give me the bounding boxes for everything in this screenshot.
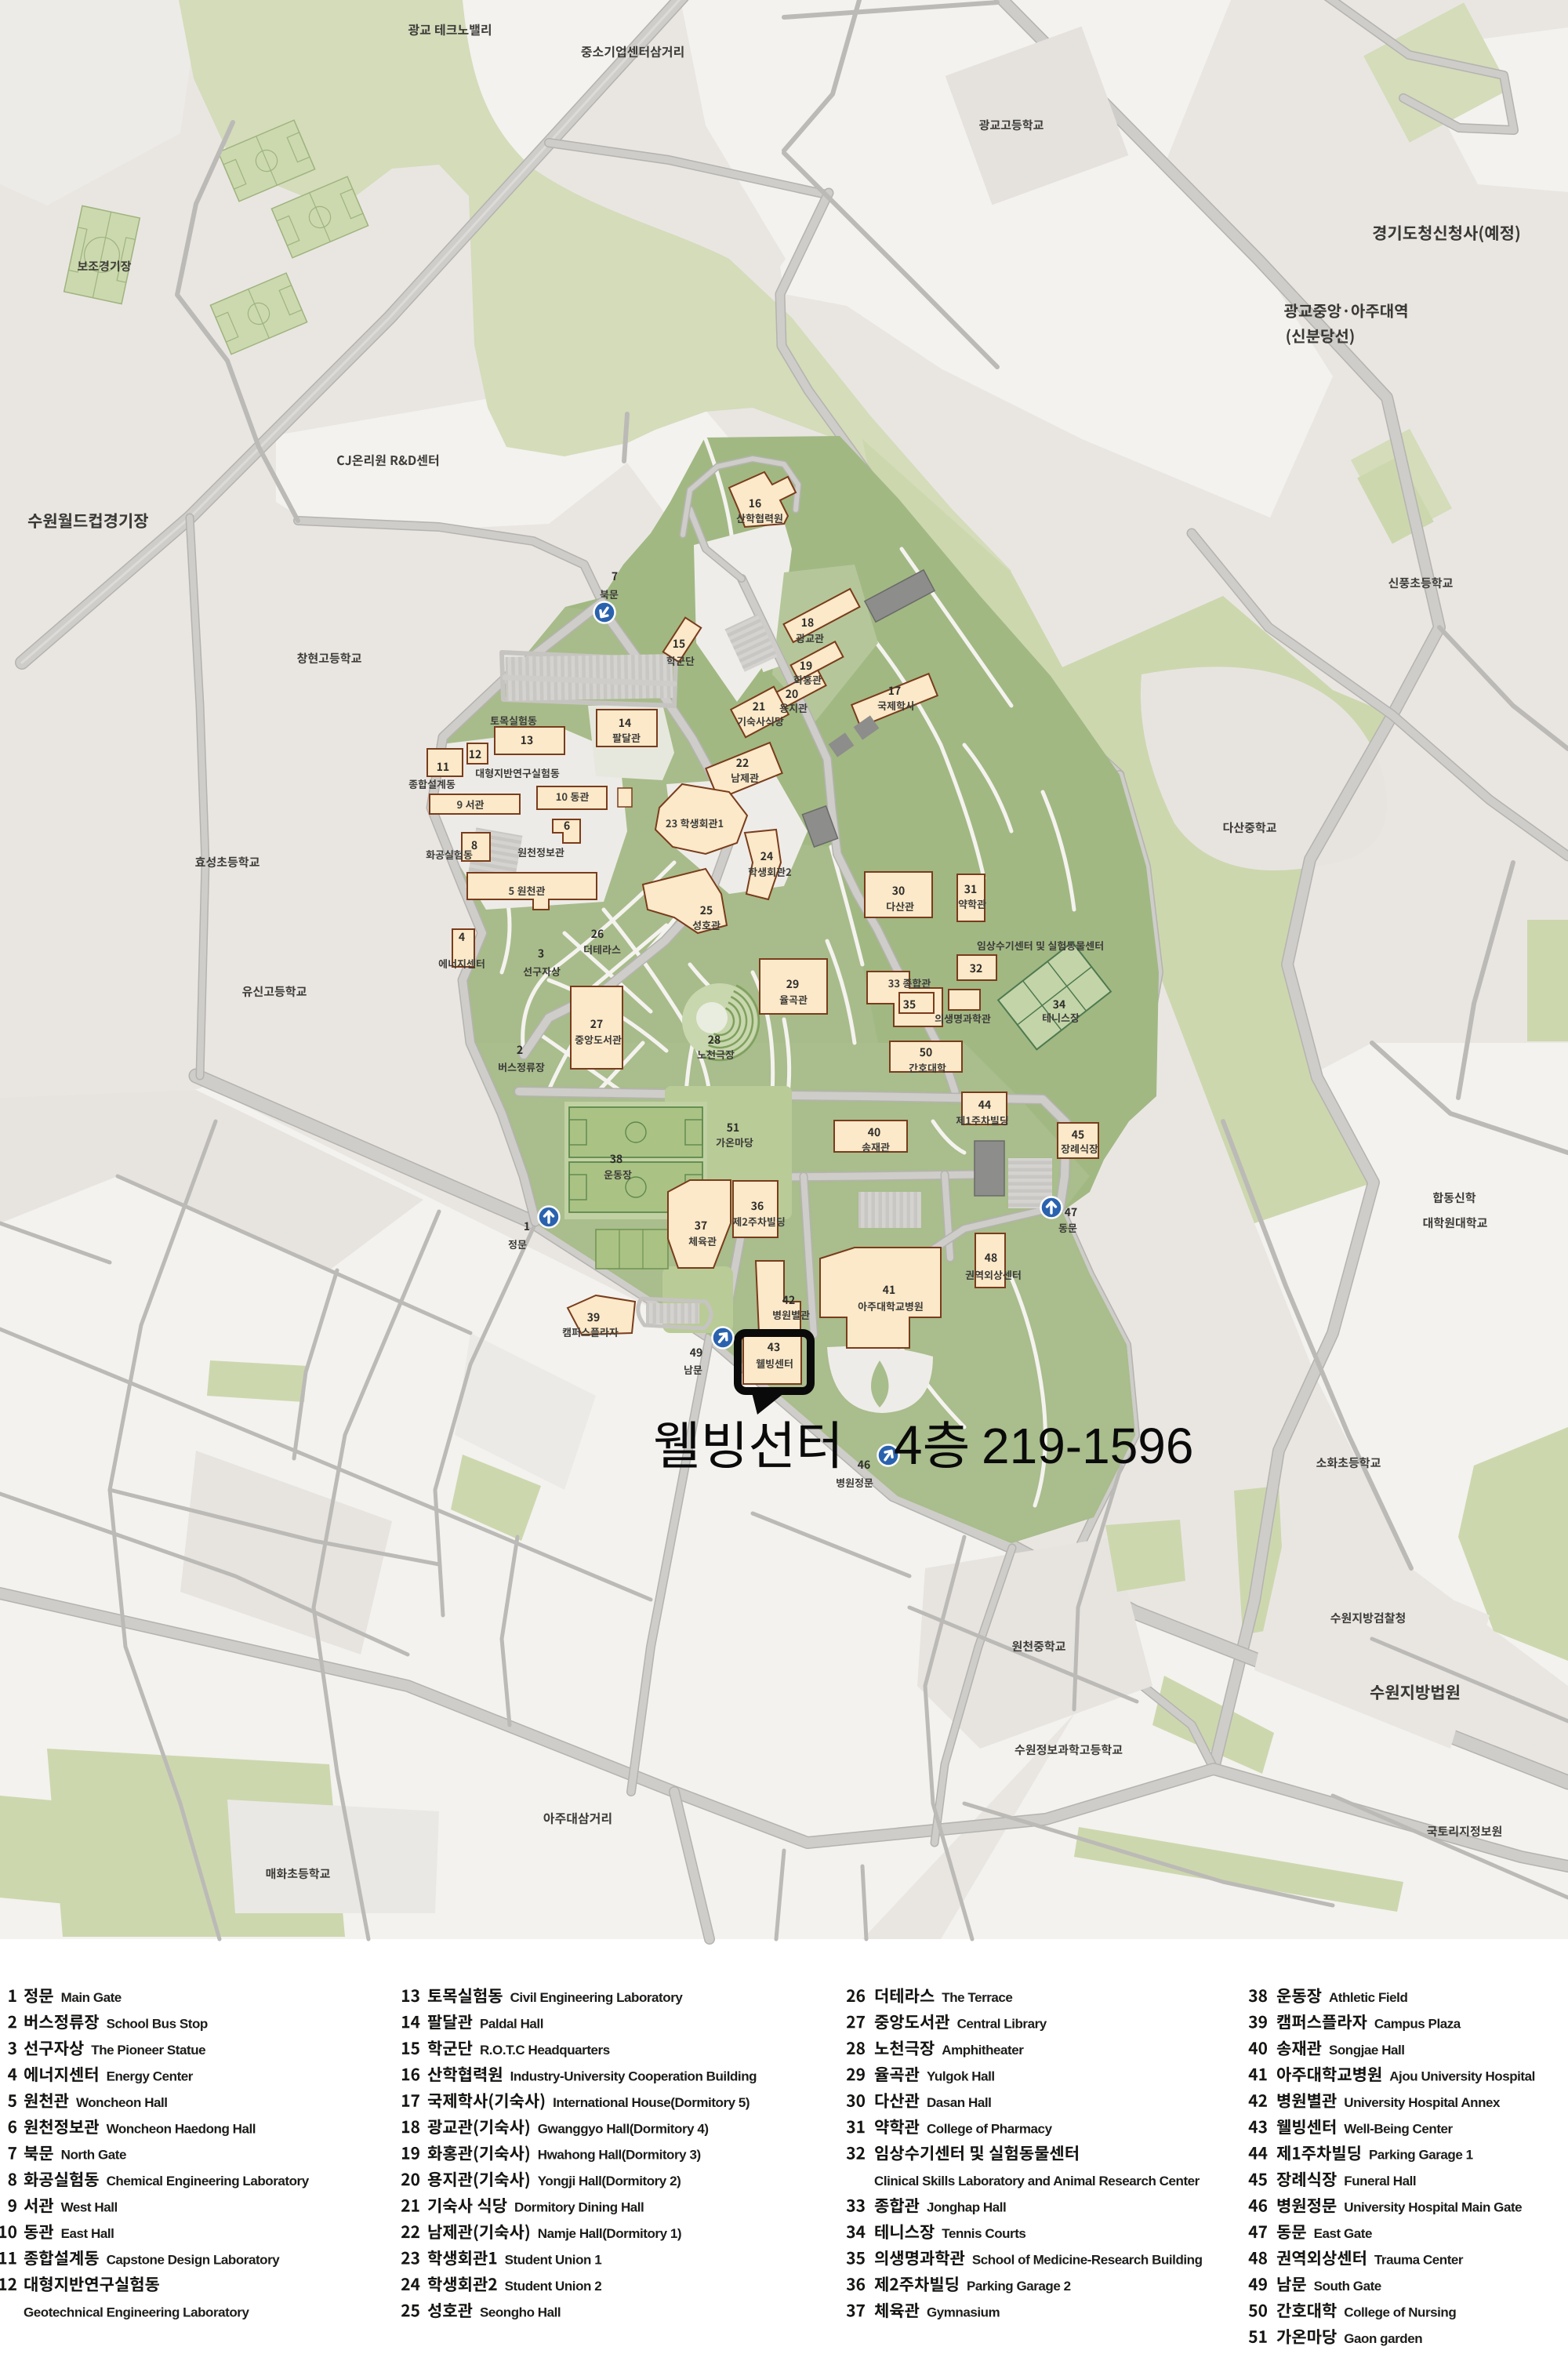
svg-text:College of Nursing: College of Nursing [1344, 2305, 1456, 2319]
svg-text:West Hall: West Hall [61, 2200, 118, 2215]
svg-text:Yulgok Hall: Yulgok Hall [927, 2069, 995, 2083]
svg-text:Gwanggyo Hall(Dormitory 4): Gwanggyo Hall(Dormitory 4) [538, 2121, 709, 2136]
svg-text:Woncheon Hall: Woncheon Hall [76, 2095, 168, 2110]
svg-text:Ajou University Hospital: Ajou University Hospital [1389, 2069, 1535, 2083]
svg-text:Geotechnical Engineering Labor: Geotechnical Engineering Laboratory [24, 2305, 249, 2319]
svg-text:Gaon garden: Gaon garden [1344, 2331, 1422, 2346]
svg-text:Yongji Hall(Dormitory 2): Yongji Hall(Dormitory 2) [538, 2174, 681, 2188]
svg-text:Student Union 1: Student Union 1 [505, 2253, 602, 2268]
svg-text:Hwahong Hall(Dormitory 3): Hwahong Hall(Dormitory 3) [538, 2148, 701, 2163]
svg-text:East Gate: East Gate [1314, 2226, 1372, 2241]
svg-text:Energy Center: Energy Center [107, 2069, 194, 2083]
svg-text:Jonghap Hall: Jonghap Hall [927, 2200, 1006, 2215]
svg-text:South Gate: South Gate [1314, 2279, 1381, 2294]
svg-text:The Pioneer Statue: The Pioneer Statue [91, 2043, 205, 2058]
svg-text:219-1596: 219-1596 [982, 1418, 1193, 1474]
svg-text:International House(Dormitory: International House(Dormitory 5) [553, 2095, 750, 2110]
svg-text:University Hospital Main Gate: University Hospital Main Gate [1344, 2200, 1522, 2215]
svg-text:R.O.T.C Headquarters: R.O.T.C Headquarters [480, 2043, 610, 2058]
svg-text:Dasan Hall: Dasan Hall [927, 2095, 991, 2110]
svg-text:Gymnasium: Gymnasium [927, 2305, 1000, 2319]
svg-text:North Gate: North Gate [61, 2148, 126, 2163]
svg-text:Chemical Engineering Laborator: Chemical Engineering Laboratory [107, 2174, 310, 2188]
svg-text:College of Pharmacy: College of Pharmacy [927, 2121, 1053, 2136]
svg-text:School of Medicine-Research Bu: School of Medicine-Research Building [972, 2253, 1203, 2268]
svg-text:Central Library: Central Library [957, 2016, 1047, 2031]
svg-text:Trauma Center: Trauma Center [1374, 2253, 1464, 2268]
svg-text:Capstone Design Laboratory: Capstone Design Laboratory [107, 2253, 281, 2268]
svg-text:Athletic Field: Athletic Field [1329, 1990, 1407, 2005]
svg-text:Tennis Courts: Tennis Courts [942, 2226, 1025, 2241]
svg-text:East Hall: East Hall [61, 2226, 114, 2241]
svg-text:Civil Engineering Laboratory: Civil Engineering Laboratory [510, 1990, 684, 2005]
svg-text:Seongho Hall: Seongho Hall [480, 2305, 561, 2319]
svg-text:Parking Garage 1: Parking Garage 1 [1369, 2148, 1473, 2163]
svg-text:Parking Garage 2: Parking Garage 2 [967, 2279, 1071, 2294]
svg-text:The Terrace: The Terrace [942, 1990, 1012, 2005]
svg-text:Campus Plaza: Campus Plaza [1374, 2016, 1461, 2031]
svg-text:Songjae Hall: Songjae Hall [1329, 2043, 1405, 2058]
svg-text:Dormitory Dining Hall: Dormitory Dining Hall [514, 2200, 644, 2215]
svg-text:School Bus Stop: School Bus Stop [107, 2016, 208, 2031]
svg-text:Paldal Hall: Paldal Hall [480, 2016, 543, 2031]
svg-text:Amphitheater: Amphitheater [942, 2043, 1024, 2058]
svg-text:Funeral Hall: Funeral Hall [1344, 2174, 1416, 2188]
svg-text:Clinical Skills Laboratory and: Clinical Skills Laboratory and Animal Re… [874, 2174, 1200, 2188]
svg-text:University Hospital Annex: University Hospital Annex [1344, 2095, 1501, 2110]
svg-text:Well-Being Center: Well-Being Center [1344, 2121, 1453, 2136]
svg-text:Student Union 2: Student Union 2 [505, 2279, 602, 2294]
svg-text:Main Gate: Main Gate [61, 1990, 122, 2005]
svg-text:Industry-University Cooperatio: Industry-University Cooperation Building [510, 2069, 757, 2083]
svg-text:Woncheon Haedong Hall: Woncheon Haedong Hall [107, 2121, 256, 2136]
svg-text:Namje Hall(Dormitory 1): Namje Hall(Dormitory 1) [538, 2226, 681, 2241]
